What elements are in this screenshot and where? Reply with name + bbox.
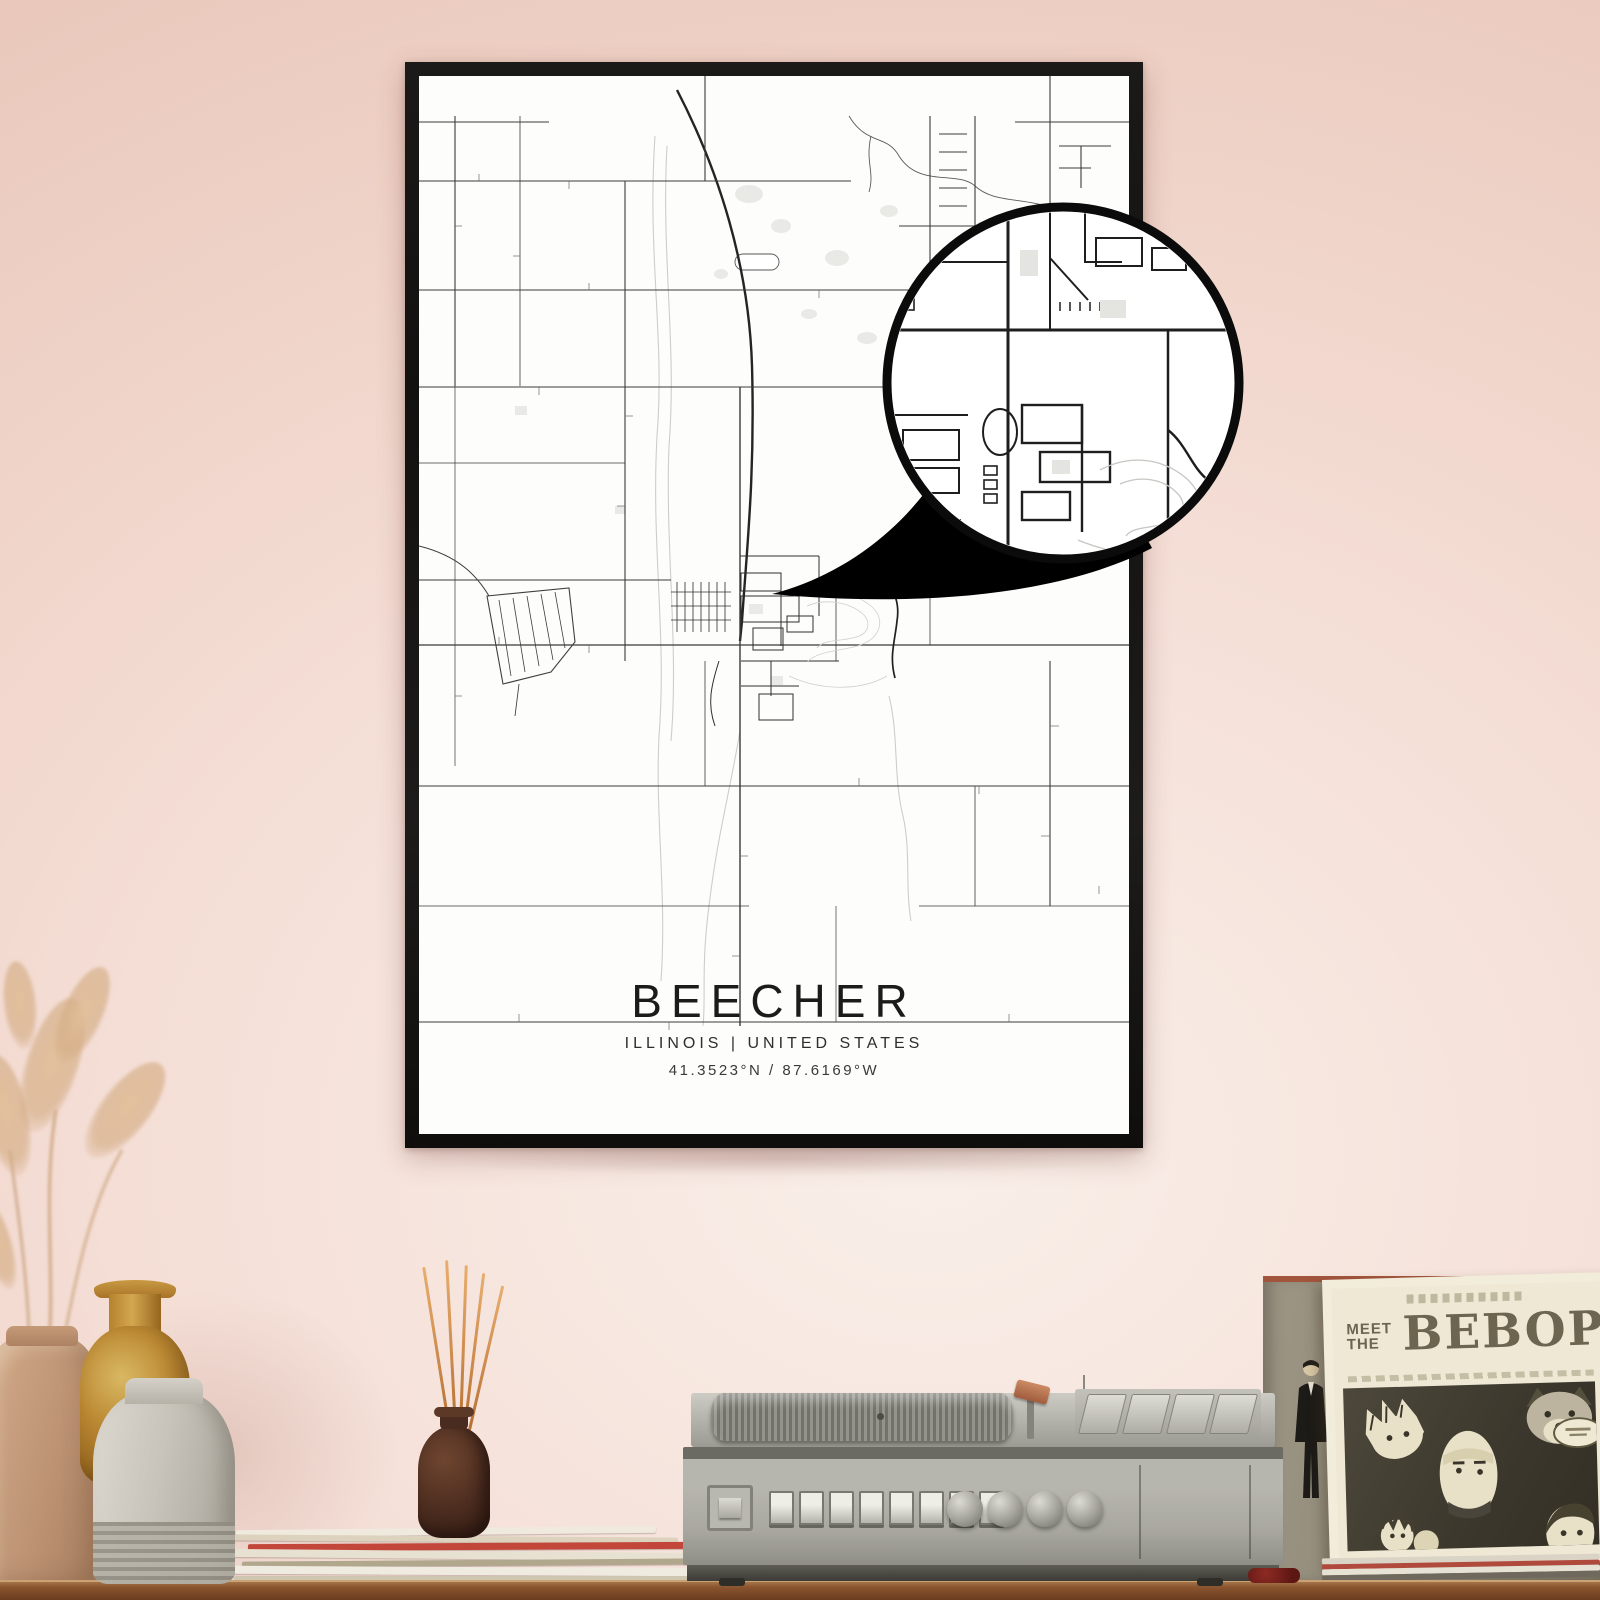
preset-key-deck xyxy=(1075,1389,1261,1439)
magnifier-ring xyxy=(887,207,1239,559)
face-faye xyxy=(1545,1503,1595,1551)
red-object xyxy=(1248,1568,1300,1583)
record-label-logo xyxy=(1554,1418,1600,1448)
tonearm-headshell xyxy=(1013,1379,1050,1405)
wooden-shelf xyxy=(0,1580,1600,1600)
poster-title-block: BEECHER ILLINOIS | UNITED STATES 41.3523… xyxy=(419,974,1129,1079)
poster-coordinates: 41.3523°N / 87.6169°W xyxy=(419,1062,1129,1079)
player-top-deck xyxy=(691,1393,1275,1447)
album-title-block: MEET THE BEBOP xyxy=(1344,1307,1600,1372)
panel-seam xyxy=(1249,1465,1251,1559)
balance-knob xyxy=(987,1491,1023,1527)
face-spike xyxy=(1357,1390,1430,1467)
record-player xyxy=(683,1385,1283,1581)
album-artwork xyxy=(1343,1381,1599,1551)
album-pre-title: MEET THE xyxy=(1346,1321,1392,1352)
album-tagline-marks xyxy=(1348,1369,1594,1382)
poster-title: BEECHER xyxy=(419,974,1129,1028)
room-scene: BEECHER ILLINOIS | UNITED STATES 41.3523… xyxy=(0,0,1600,1600)
power-button xyxy=(707,1485,753,1531)
album-cover: MEET THE BEBOP xyxy=(1331,1281,1600,1560)
panel-seam xyxy=(1139,1465,1141,1559)
platter-spindle xyxy=(877,1413,884,1420)
preset-key xyxy=(1209,1394,1258,1434)
bass-knob xyxy=(1027,1491,1063,1527)
stereo-marks xyxy=(1406,1291,1526,1303)
player-foot xyxy=(1197,1578,1223,1586)
face-ed xyxy=(1380,1512,1439,1552)
preset-key xyxy=(1166,1394,1215,1434)
poster-region: ILLINOIS | UNITED STATES xyxy=(419,1035,1129,1053)
magnifier-callout xyxy=(735,145,1265,625)
player-foot xyxy=(719,1578,745,1586)
player-base xyxy=(687,1565,1279,1581)
diffuser-sticks xyxy=(428,1258,498,1430)
album-sleeve: MEET THE BEBOP xyxy=(1322,1272,1600,1570)
hatched-area xyxy=(487,588,575,716)
treble-knob xyxy=(1067,1491,1103,1527)
preset-key xyxy=(1078,1394,1127,1434)
face-jet xyxy=(1439,1430,1499,1519)
reed-diffuser-bottle xyxy=(418,1426,490,1538)
turntable-platter xyxy=(711,1393,1013,1441)
preset-key xyxy=(1122,1394,1171,1434)
volume-knob xyxy=(947,1491,983,1527)
album-title: BEBOP xyxy=(1402,1301,1600,1362)
gray-ribbed-vase xyxy=(93,1392,235,1584)
player-front-panel xyxy=(683,1447,1283,1565)
tonearm xyxy=(1013,1383,1073,1443)
